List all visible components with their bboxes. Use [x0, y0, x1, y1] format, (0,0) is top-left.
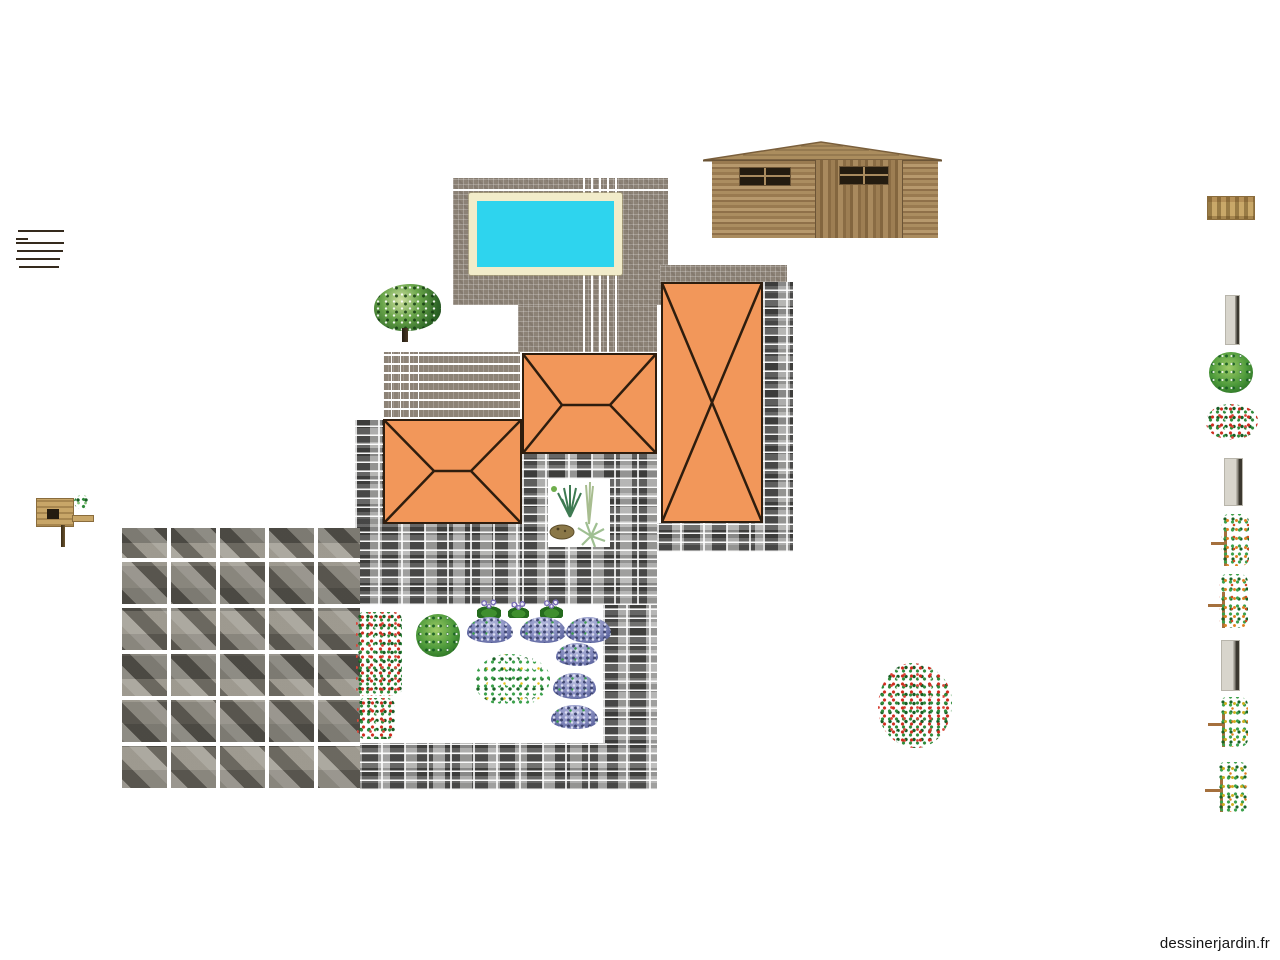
palette-wooden-planter[interactable] — [1207, 196, 1255, 220]
tree-crown — [374, 284, 441, 331]
espalier-foliage — [1217, 762, 1248, 812]
rockery-patch[interactable] — [548, 479, 610, 547]
window-mullion — [840, 174, 888, 176]
gable-roof-right[interactable] — [661, 282, 763, 523]
swimming-pool[interactable] — [469, 193, 622, 275]
palette-espalier-yellow[interactable] — [1208, 697, 1248, 747]
flower-hedge[interactable] — [357, 698, 395, 739]
wooden-shed[interactable] — [703, 140, 942, 240]
plank-line — [17, 250, 63, 252]
palette-espalier-orange[interactable] — [1208, 574, 1248, 628]
birdhouse[interactable] — [36, 495, 96, 547]
round-shrub[interactable] — [416, 614, 460, 657]
stone-pathway[interactable] — [355, 524, 522, 605]
rockery-plants — [548, 479, 610, 547]
wooden-deck[interactable] — [383, 352, 520, 419]
shed-window — [839, 166, 889, 185]
lavender-bush[interactable] — [556, 643, 598, 666]
palette-stone-slab[interactable] — [1225, 295, 1240, 345]
birdhouse-perch — [72, 515, 94, 522]
plank-line — [16, 238, 28, 240]
plank-line — [16, 258, 60, 260]
lavender-bush[interactable] — [467, 617, 513, 643]
tree-trunk — [402, 328, 408, 342]
birdhouse-pole — [61, 525, 65, 547]
palette-stone-slab[interactable] — [1224, 458, 1243, 506]
lavender-bush[interactable] — [553, 673, 596, 699]
palette-espalier-orange[interactable] — [1211, 514, 1249, 566]
garden-plan-canvas: dessinerjardin.fr — [0, 0, 1280, 960]
tree[interactable] — [374, 284, 441, 342]
flagstone-patio[interactable] — [118, 528, 360, 792]
plank-line — [19, 266, 59, 268]
stone-pathway[interactable] — [603, 605, 657, 790]
birdhouse-hole — [47, 509, 59, 519]
pool-water — [477, 201, 614, 267]
stone-pathway[interactable] — [355, 420, 385, 526]
lavender-bush[interactable] — [551, 705, 598, 729]
wood-plank-stack[interactable] — [16, 230, 66, 272]
palette-red-flower-shrub[interactable] — [1206, 404, 1258, 440]
flower-hedge[interactable] — [356, 612, 402, 696]
paved-deck-strip[interactable] — [660, 265, 787, 282]
lavender-bush[interactable] — [520, 617, 566, 643]
pansy[interactable] — [508, 601, 529, 618]
shed-roof — [703, 140, 942, 162]
espalier-foliage — [1219, 697, 1248, 747]
deck-expansion-joint — [453, 189, 668, 191]
window-mullion — [740, 175, 790, 177]
hip-roof-middle[interactable] — [522, 353, 657, 454]
plank-line — [16, 242, 64, 244]
palette-espalier-yellow[interactable] — [1205, 762, 1248, 812]
stone-pathway[interactable] — [763, 282, 793, 552]
red-flower-shrub[interactable] — [878, 663, 952, 748]
watermark: dessinerjardin.fr — [1160, 935, 1270, 952]
palette-stone-slab[interactable] — [1221, 640, 1240, 691]
espalier-foliage — [1221, 514, 1249, 566]
pansy[interactable] — [540, 599, 563, 618]
shed-window — [739, 167, 791, 186]
bird-plant — [74, 495, 90, 509]
plank-line — [18, 230, 64, 232]
espalier-foliage — [1219, 574, 1248, 628]
hip-roof-left[interactable] — [383, 419, 522, 524]
pansy[interactable] — [477, 599, 501, 618]
stone-pathway[interactable] — [335, 743, 607, 790]
palette-green-shrub[interactable] — [1209, 352, 1253, 393]
lavender-bush[interactable] — [566, 617, 611, 643]
white-flower-shrub[interactable] — [474, 654, 550, 707]
